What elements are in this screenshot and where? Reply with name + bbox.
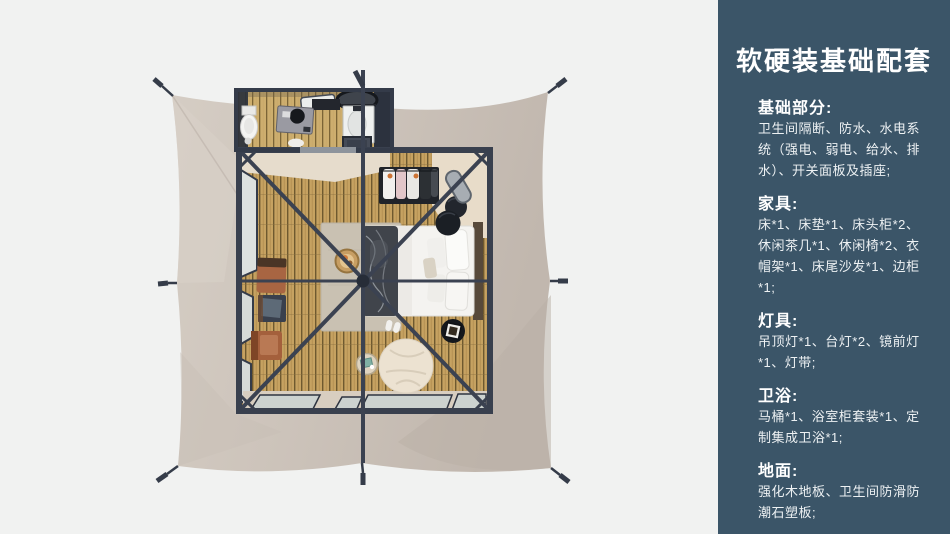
bathroom (236, 88, 392, 154)
panel-title: 软硬装基础配套 (736, 46, 930, 76)
frame-hub (357, 275, 370, 288)
info-panel: 软硬装基础配套 基础部分: 卫生间隔断、防水、水电系统（强电、弱电、给水、排水）… (718, 0, 950, 534)
section-heading: 灯具: (758, 313, 930, 331)
bean-bag (379, 339, 433, 393)
section-bathroom: 卫浴: 马桶*1、浴室柜套装*1、定制集成卫浴*1; (758, 388, 930, 448)
tray-table (441, 319, 465, 343)
throw-blanket (362, 226, 398, 316)
section-body: 强化木地板、卫生间防滑防潮石塑板; (758, 481, 930, 523)
tent-floorplan-render (0, 0, 718, 534)
side-cabinet (256, 258, 286, 294)
section-basics: 基础部分: 卫生间隔断、防水、水电系统（强电、弱电、给水、排水）、开关面板及插座… (758, 100, 930, 181)
section-heading: 地面: (758, 463, 930, 481)
bathroom-doorway (300, 147, 356, 153)
bath-stool (288, 139, 304, 148)
lounge-chair-2 (251, 331, 282, 360)
section-body: 马桶*1、浴室柜套装*1、定制集成卫浴*1; (758, 406, 930, 448)
page: 软硬装基础配套 基础部分: 卫生间隔断、防水、水电系统（强电、弱电、给水、排水）… (0, 0, 950, 534)
section-heading: 家具: (758, 196, 930, 214)
section-body: 卫生间隔断、防水、水电系统（强电、弱电、给水、排水）、开关面板及插座; (758, 118, 930, 181)
lounge-chair-1 (258, 295, 286, 322)
section-lighting: 灯具: 吊顶灯*1、台灯*2、镜前灯*1、灯带; (758, 313, 930, 373)
section-flooring: 地面: 强化木地板、卫生间防滑防潮石塑板; (758, 463, 930, 523)
vanity-desk (276, 106, 314, 134)
section-body: 床*1、床垫*1、床头柜*2、休闲茶几*1、休闲椅*2、衣帽架*1、床尾沙发*1… (758, 214, 930, 298)
clothes-rack (379, 167, 439, 204)
section-body: 吊顶灯*1、台灯*2、镜前灯*1、灯带; (758, 331, 930, 373)
section-furniture: 家具: 床*1、床垫*1、床头柜*2、休闲茶几*1、休闲椅*2、衣帽架*1、床尾… (758, 196, 930, 298)
side-table (357, 354, 378, 375)
counter (312, 99, 340, 110)
section-heading: 基础部分: (758, 100, 930, 118)
section-heading: 卫浴: (758, 388, 930, 406)
